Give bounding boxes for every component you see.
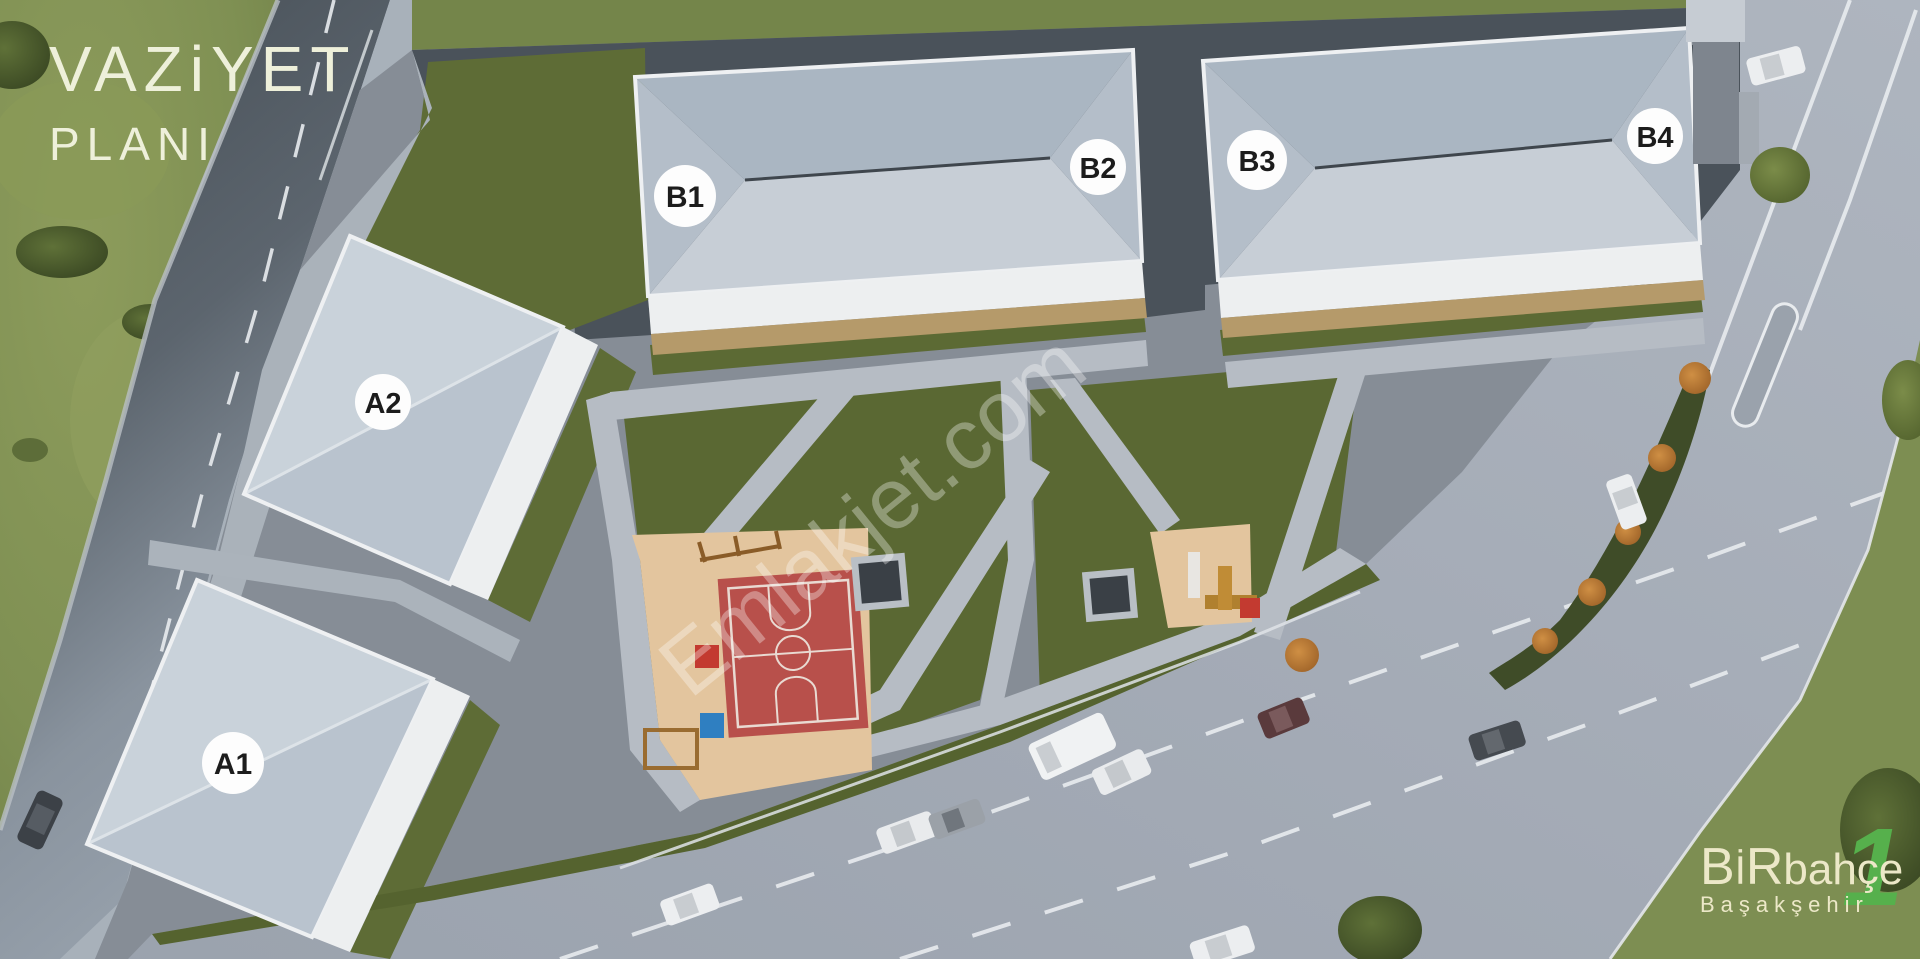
svg-text:B1: B1	[666, 181, 704, 214]
svg-text:B3: B3	[1238, 146, 1275, 178]
svg-text:A1: A1	[214, 748, 252, 781]
svg-text:Başakşehir: Başakşehir	[1700, 892, 1869, 917]
svg-text:BİRbahçe: BİRbahçe	[1700, 838, 1903, 896]
svg-text:A2: A2	[364, 388, 401, 420]
svg-text:B4: B4	[1636, 122, 1673, 154]
svg-text:VAZiYET: VAZiYET	[49, 33, 356, 105]
svg-text:B2: B2	[1079, 153, 1116, 185]
svg-text:PLANI: PLANI	[49, 118, 217, 170]
